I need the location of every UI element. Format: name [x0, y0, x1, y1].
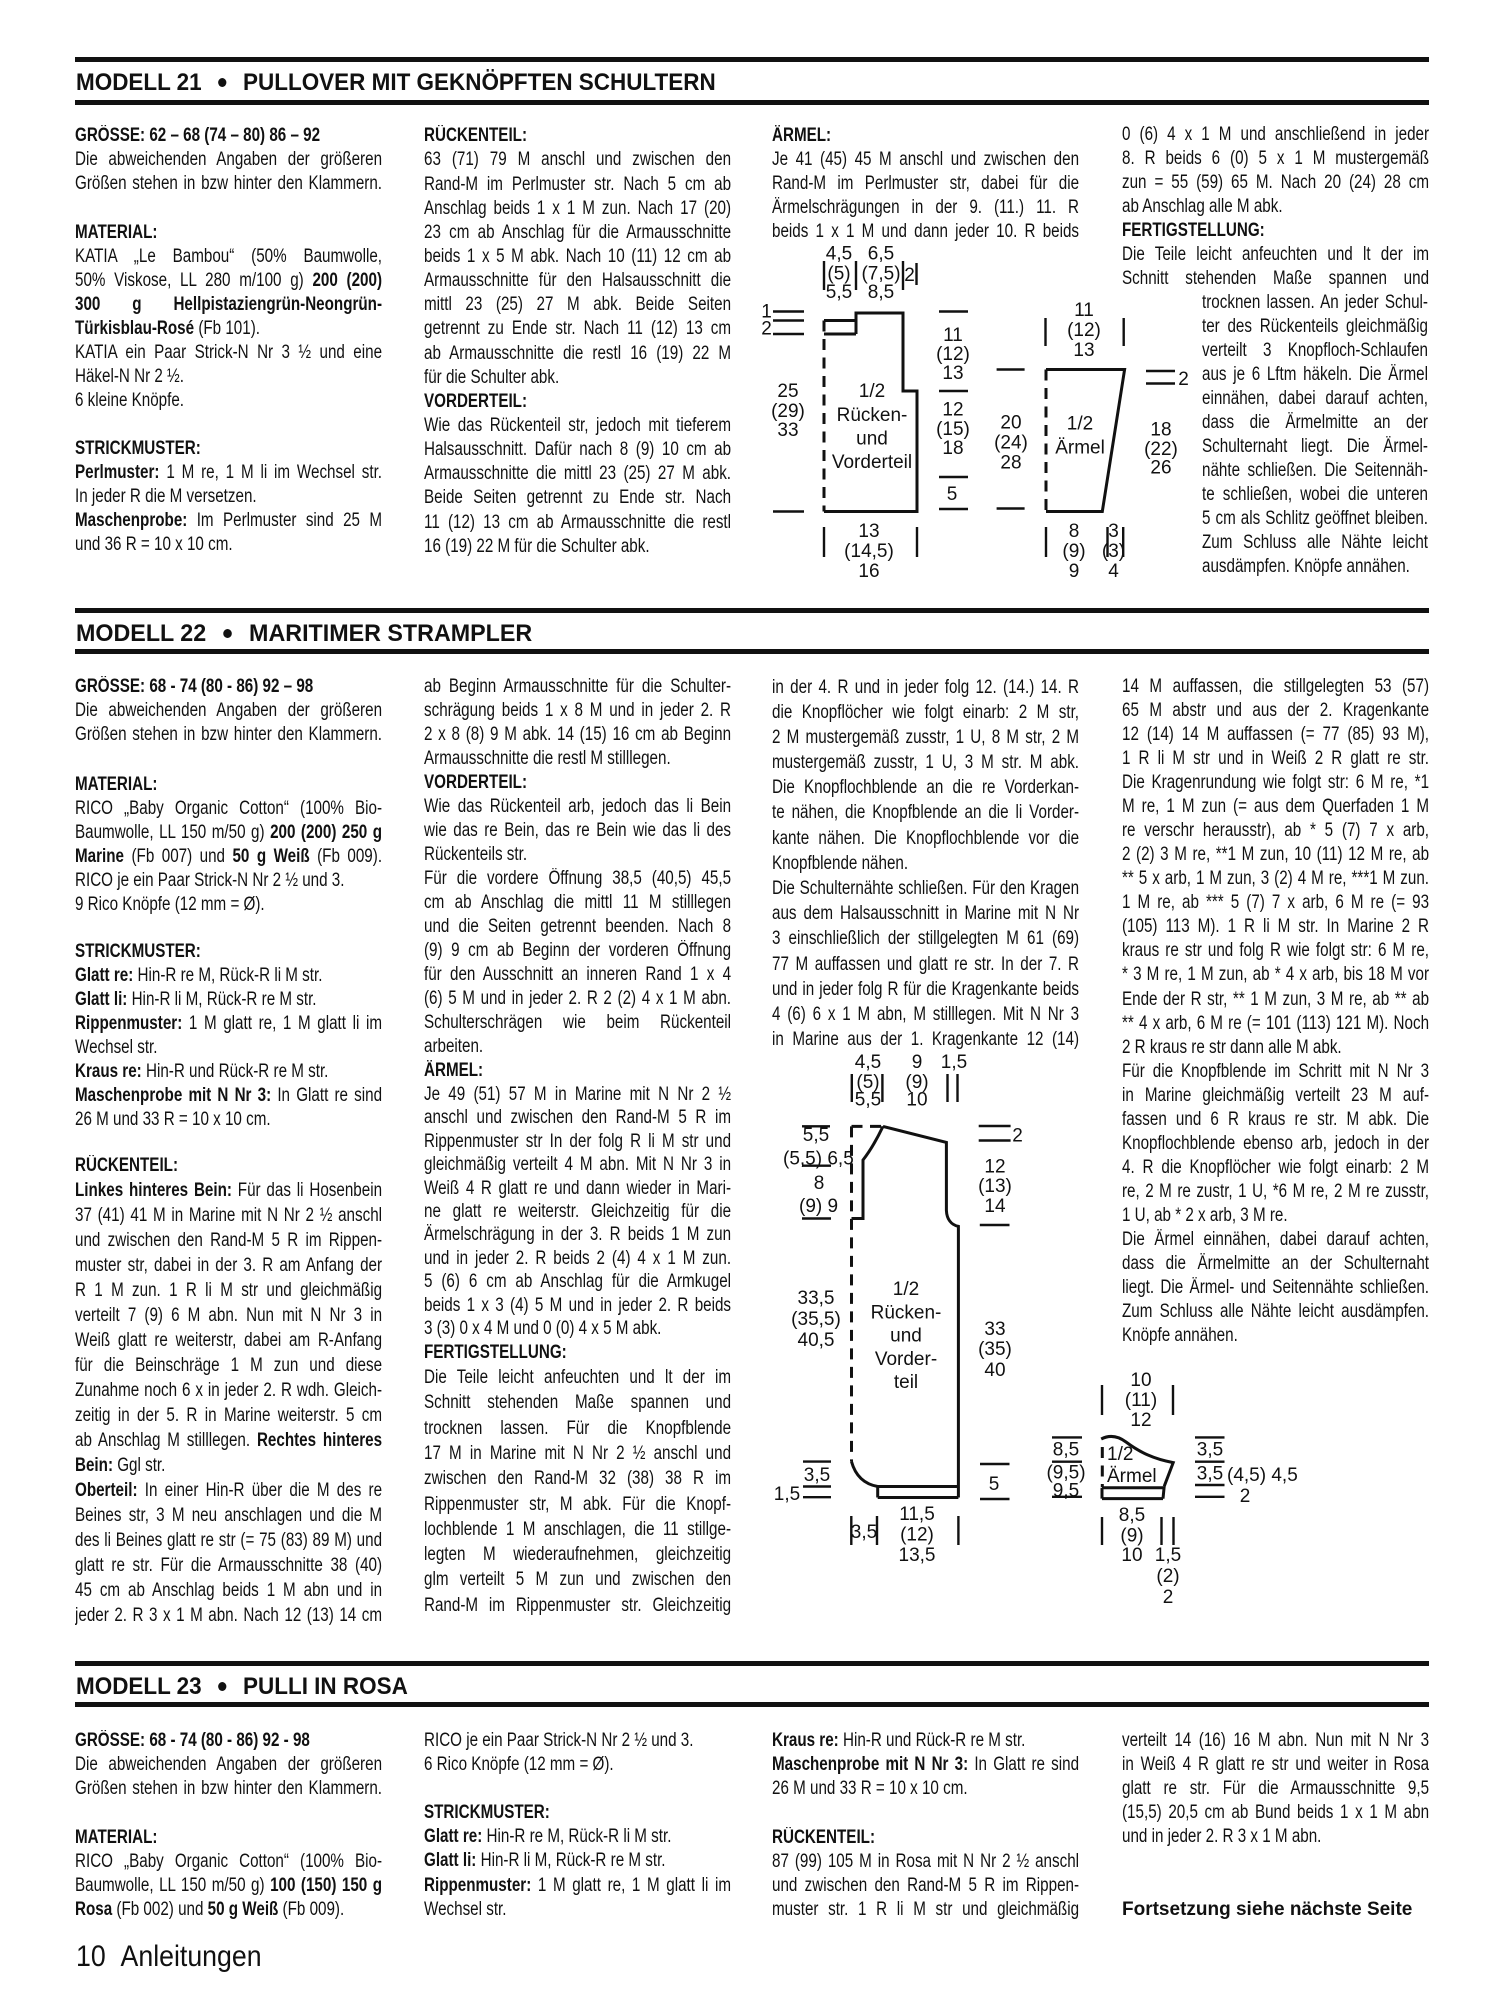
svg-text:13: 13 [858, 521, 879, 542]
svg-text:1/2: 1/2 [1067, 414, 1093, 435]
svg-text:40: 40 [984, 1360, 1005, 1381]
svg-text:(13): (13) [978, 1176, 1012, 1197]
svg-text:9,5: 9,5 [1053, 1481, 1079, 1502]
svg-text:Vorder-: Vorder- [875, 1349, 937, 1370]
svg-text:6,5: 6,5 [868, 244, 894, 265]
svg-text:1,5: 1,5 [941, 1052, 967, 1073]
svg-text:13: 13 [942, 363, 963, 384]
svg-text:40,5: 40,5 [798, 1330, 835, 1351]
svg-text:4,5: 4,5 [855, 1052, 881, 1073]
svg-text:12: 12 [942, 400, 963, 421]
svg-text:8,5: 8,5 [1119, 1505, 1145, 1526]
svg-text:16: 16 [858, 561, 879, 582]
svg-text:3,5: 3,5 [1197, 1440, 1223, 1461]
svg-text:(3): (3) [1102, 541, 1125, 562]
svg-text:(35): (35) [978, 1339, 1012, 1360]
svg-text:(12): (12) [1067, 320, 1101, 341]
svg-text:(9) 9: (9) 9 [799, 1196, 838, 1217]
svg-text:3,5: 3,5 [851, 1522, 877, 1543]
svg-text:(14,5): (14,5) [844, 541, 894, 562]
svg-text:(9): (9) [1062, 541, 1085, 562]
svg-text:8,5: 8,5 [868, 282, 894, 303]
svg-text:12: 12 [984, 1157, 1005, 1178]
svg-text:11,5: 11,5 [899, 1504, 935, 1525]
svg-text:2: 2 [1178, 369, 1189, 390]
svg-text:26: 26 [1150, 458, 1171, 479]
svg-text:Ärmel: Ärmel [1055, 438, 1105, 459]
svg-text:10: 10 [1121, 1545, 1142, 1566]
svg-text:3,5: 3,5 [804, 1465, 830, 1486]
svg-text:33: 33 [777, 420, 798, 441]
svg-text:(2): (2) [1156, 1566, 1179, 1587]
svg-text:(9): (9) [1120, 1526, 1143, 1547]
svg-text:25: 25 [777, 381, 798, 402]
svg-text:Rücken-: Rücken- [837, 405, 908, 426]
svg-text:5: 5 [947, 484, 958, 505]
svg-text:14: 14 [984, 1196, 1006, 1217]
svg-text:1/2: 1/2 [859, 381, 885, 402]
svg-text:2: 2 [904, 265, 915, 286]
svg-text:4: 4 [1108, 561, 1119, 582]
svg-text:(12): (12) [900, 1525, 934, 1546]
svg-text:11: 11 [943, 325, 963, 346]
svg-text:8: 8 [814, 1173, 825, 1194]
svg-text:13,5: 13,5 [899, 1545, 936, 1566]
svg-text:10: 10 [906, 1090, 927, 1111]
svg-text:(12): (12) [936, 344, 970, 365]
svg-text:2: 2 [1163, 1587, 1174, 1608]
svg-text:33,5: 33,5 [798, 1288, 835, 1309]
svg-text:9: 9 [912, 1052, 923, 1073]
svg-text:und: und [890, 1326, 922, 1347]
svg-text:18: 18 [1150, 420, 1171, 441]
svg-text:3: 3 [1108, 521, 1119, 542]
svg-text:8,5: 8,5 [1053, 1440, 1079, 1461]
svg-text:2: 2 [1240, 1486, 1251, 1507]
svg-text:33: 33 [984, 1319, 1005, 1340]
svg-text:1,5: 1,5 [1155, 1545, 1181, 1566]
svg-text:28: 28 [1000, 453, 1021, 474]
svg-text:(35,5): (35,5) [791, 1309, 841, 1330]
svg-text:(11): (11) [1125, 1390, 1157, 1411]
svg-text:12: 12 [1130, 1410, 1151, 1431]
svg-text:4,5: 4,5 [826, 244, 852, 265]
svg-text:1,5: 1,5 [774, 1484, 800, 1505]
svg-text:(4,5) 4,5: (4,5) 4,5 [1227, 1465, 1298, 1486]
svg-text:1/2: 1/2 [893, 1279, 919, 1300]
svg-text:5,5: 5,5 [803, 1125, 829, 1146]
svg-text:13: 13 [1073, 340, 1094, 361]
svg-text:(29): (29) [771, 401, 805, 422]
svg-text:2: 2 [761, 319, 772, 340]
svg-text:(24): (24) [994, 433, 1028, 454]
svg-text:(15): (15) [936, 419, 970, 440]
svg-text:Ärmel: Ärmel [1107, 1466, 1157, 1487]
svg-text:5,5: 5,5 [855, 1090, 881, 1111]
svg-text:10: 10 [1130, 1370, 1151, 1391]
svg-text:und: und [856, 429, 888, 450]
svg-text:11: 11 [1074, 300, 1094, 321]
svg-text:Vorderteil: Vorderteil [832, 452, 912, 473]
svg-text:3,5: 3,5 [1197, 1464, 1223, 1485]
svg-text:(5,5) 6,5: (5,5) 6,5 [783, 1149, 854, 1170]
svg-text:8: 8 [1069, 521, 1080, 542]
svg-text:5: 5 [989, 1474, 1000, 1495]
svg-text:20: 20 [1000, 413, 1021, 434]
svg-text:2: 2 [1012, 1126, 1023, 1147]
svg-text:1/2: 1/2 [1107, 1444, 1133, 1465]
svg-text:18: 18 [942, 438, 963, 459]
svg-text:teil: teil [894, 1372, 918, 1393]
svg-text:5,5: 5,5 [826, 282, 852, 303]
svg-text:9: 9 [1069, 561, 1080, 582]
svg-text:Rücken-: Rücken- [871, 1303, 942, 1324]
